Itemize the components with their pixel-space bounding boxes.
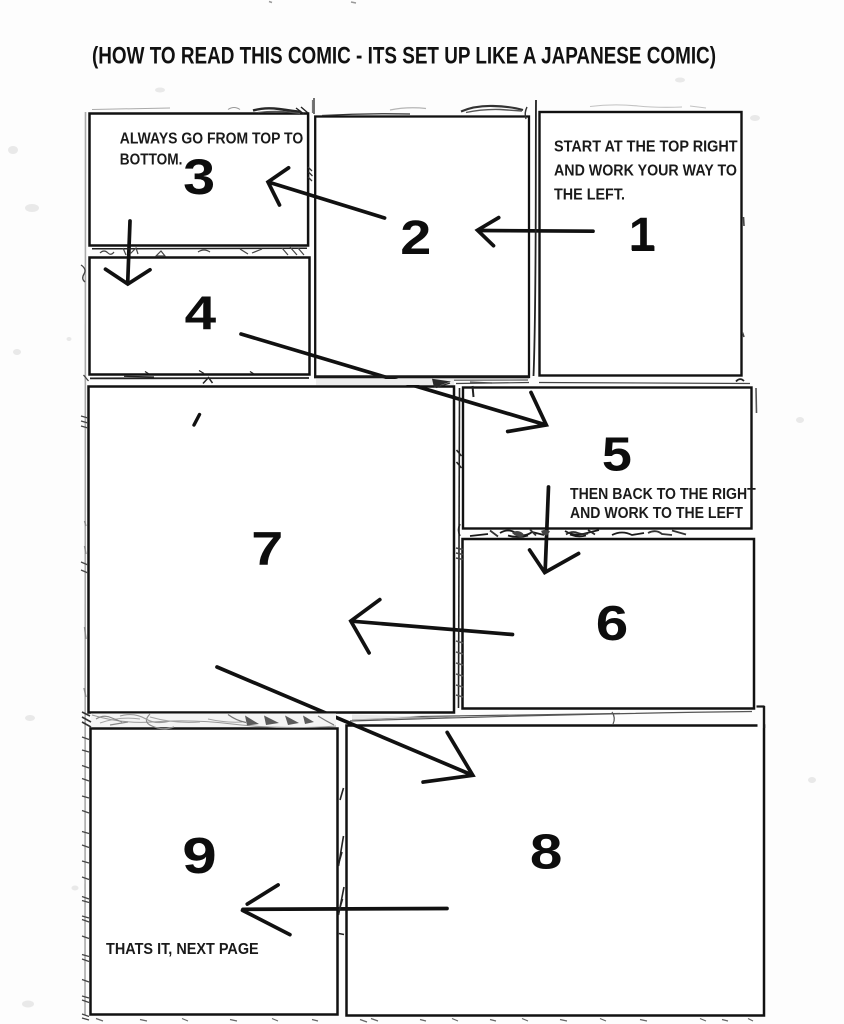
svg-text:(HOW TO READ THIS COMIC - ITS: (HOW TO READ THIS COMIC - ITS SET UP LIK… (92, 43, 716, 70)
svg-text:THATS IT, NEXT PAGE: THATS IT, NEXT PAGE (106, 941, 259, 958)
svg-text:2: 2 (400, 211, 431, 265)
svg-text:7: 7 (251, 523, 283, 575)
svg-text:THEN BACK TO THE RIGHT: THEN BACK TO THE RIGHT (570, 486, 756, 503)
svg-text:1: 1 (629, 208, 656, 262)
svg-text:START AT THE TOP RIGHT: START AT THE TOP RIGHT (554, 139, 738, 156)
svg-text:4: 4 (185, 287, 217, 340)
svg-text:AND WORK TO THE LEFT: AND WORK TO THE LEFT (570, 505, 743, 522)
svg-text:5: 5 (602, 427, 632, 481)
svg-text:6: 6 (596, 596, 629, 651)
svg-text:AND WORK YOUR WAY TO: AND WORK YOUR WAY TO (554, 163, 737, 180)
svg-text:3: 3 (183, 148, 215, 205)
svg-text:BOTTOM.: BOTTOM. (120, 152, 183, 169)
svg-text:9: 9 (182, 827, 217, 884)
svg-text:THE LEFT.: THE LEFT. (554, 187, 625, 204)
svg-text:ALWAYS GO FROM TOP TO: ALWAYS GO FROM TOP TO (120, 130, 303, 147)
svg-text:8: 8 (530, 825, 563, 879)
